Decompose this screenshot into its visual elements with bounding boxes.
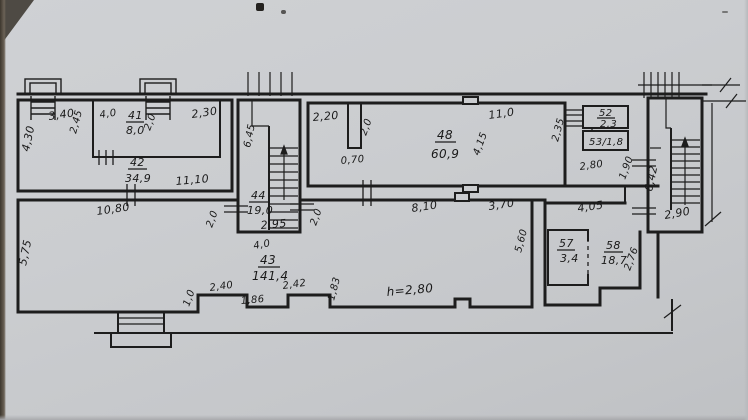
- dim-label-1-90: 1,90: [617, 155, 636, 181]
- floor-plan-drawing: 3,40 2,45 4,30 4,0 41 8,0 2,0 2,30 42 34…: [0, 0, 748, 420]
- dim-label-4-0-43: 4,0: [253, 238, 272, 252]
- dim-label-2-76: 2,76: [622, 246, 641, 272]
- room-43-number: 43: [260, 253, 276, 267]
- dim-label-2-95: 2,95: [260, 217, 287, 232]
- dim-label-10-80: 10,80: [96, 200, 131, 218]
- dim-label-4-15: 4,15: [471, 131, 490, 157]
- door-opening-ticks: [99, 110, 656, 324]
- dim-label-4-05: 4,05: [577, 198, 605, 215]
- room-44-area: 19,0: [247, 204, 273, 217]
- room-57-area: 3,4: [560, 252, 579, 265]
- room-41-area: 8,0: [126, 124, 145, 137]
- dimension-extension-lines: [664, 78, 746, 318]
- dim-label-8-10: 8,10: [411, 198, 439, 215]
- room-48-number: 48: [437, 128, 453, 142]
- dim-label-0-70: 0,70: [340, 154, 365, 167]
- dim-label-11-10: 11,10: [175, 172, 210, 188]
- room-41-number: 41: [128, 109, 143, 122]
- dim-label-2-40: 2,40: [209, 280, 234, 294]
- room-42-number: 42: [130, 156, 145, 169]
- dim-label-2-30: 2,30: [191, 104, 219, 121]
- dim-label-2-80: 2,80: [579, 159, 604, 173]
- dim-label-5-60: 5,60: [513, 228, 530, 254]
- dim-label-2-42: 2,42: [282, 278, 307, 292]
- height-note: h=2,80: [386, 281, 434, 299]
- dim-label-2-90: 2,90: [663, 205, 691, 222]
- dim-label-6-45: 6,45: [242, 123, 258, 149]
- dim-label-1-0: 1,0: [181, 288, 197, 308]
- dim-label-2-20: 2,20: [312, 109, 339, 124]
- room-52-area: 2,3: [600, 119, 617, 130]
- dim-label-4-30: 4,30: [19, 124, 37, 152]
- room-58-number: 58: [606, 239, 621, 252]
- dim-label-6-42: 6,42: [642, 164, 660, 192]
- dim-label-2-0: 2,0: [142, 112, 158, 132]
- room-48-area: 60,9: [431, 147, 459, 161]
- room-44-number: 44: [251, 189, 266, 202]
- room-57-number: 57: [559, 237, 574, 250]
- room-42-area: 34,9: [125, 172, 151, 185]
- room-53-label: 53/1,8: [589, 137, 623, 148]
- room-52-number: 52: [599, 108, 613, 119]
- floor-plan-photo: 3,40 2,45 4,30 4,0 41 8,0 2,0 2,30 42 34…: [0, 0, 748, 420]
- dim-label-3-70: 3,70: [488, 196, 516, 213]
- dim-label-2-0-left: 2,0: [204, 209, 220, 229]
- dim-label-1-86: 1,86: [240, 294, 265, 307]
- interior-partitions: [93, 97, 672, 347]
- dim-label-1-83: 1,83: [326, 276, 343, 302]
- dim-label-11-0: 11,0: [488, 105, 516, 122]
- dim-label-4-0: 4,0: [99, 108, 117, 121]
